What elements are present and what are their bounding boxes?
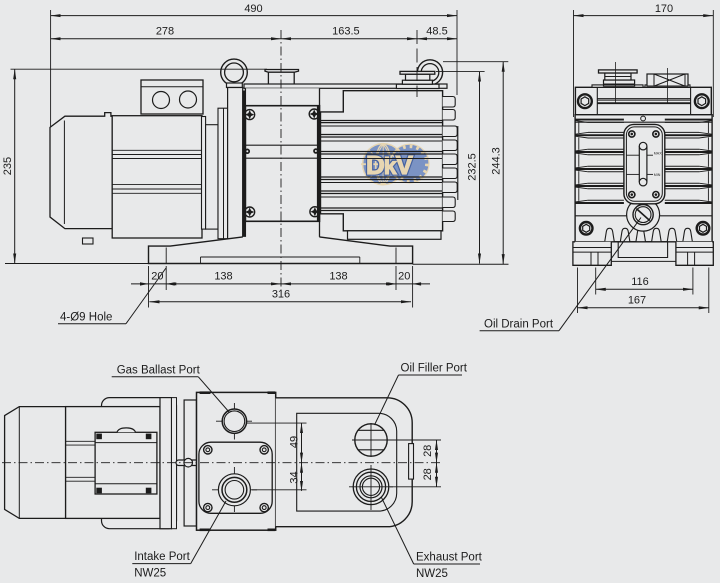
svg-text:Oil Drain Port: Oil Drain Port <box>484 318 554 330</box>
svg-text:4-Ø9 Hole: 4-Ø9 Hole <box>60 311 112 323</box>
svg-text:244.3: 244.3 <box>490 147 502 175</box>
svg-text:Oil Filler Port: Oil Filler Port <box>401 363 468 375</box>
svg-text:278: 278 <box>156 26 174 38</box>
svg-text:NW25: NW25 <box>134 568 166 580</box>
svg-text:Gas Ballast Port: Gas Ballast Port <box>117 364 201 376</box>
svg-text:49: 49 <box>288 436 300 448</box>
svg-text:232.5: 232.5 <box>467 153 479 181</box>
svg-text:48.5: 48.5 <box>426 26 447 38</box>
svg-text:34: 34 <box>288 471 300 483</box>
svg-text:167: 167 <box>628 295 646 307</box>
svg-text:163.5: 163.5 <box>332 26 360 38</box>
svg-text:20: 20 <box>398 271 410 283</box>
svg-text:28: 28 <box>422 445 434 457</box>
svg-text:116: 116 <box>631 276 649 288</box>
svg-text:Intake Port: Intake Port <box>134 551 190 563</box>
svg-text:MAX: MAX <box>654 152 662 156</box>
svg-text:138: 138 <box>214 271 232 283</box>
svg-text:490: 490 <box>244 3 262 15</box>
svg-text:20: 20 <box>151 271 163 283</box>
svg-text:28: 28 <box>422 468 434 480</box>
svg-text:170: 170 <box>655 3 673 15</box>
svg-text:Exhaust Port: Exhaust Port <box>416 552 483 564</box>
svg-text:138: 138 <box>329 271 347 283</box>
svg-text:235: 235 <box>2 157 14 175</box>
svg-text:NW25: NW25 <box>416 568 448 580</box>
svg-text:316: 316 <box>272 289 290 301</box>
svg-text:MIN: MIN <box>654 173 661 177</box>
